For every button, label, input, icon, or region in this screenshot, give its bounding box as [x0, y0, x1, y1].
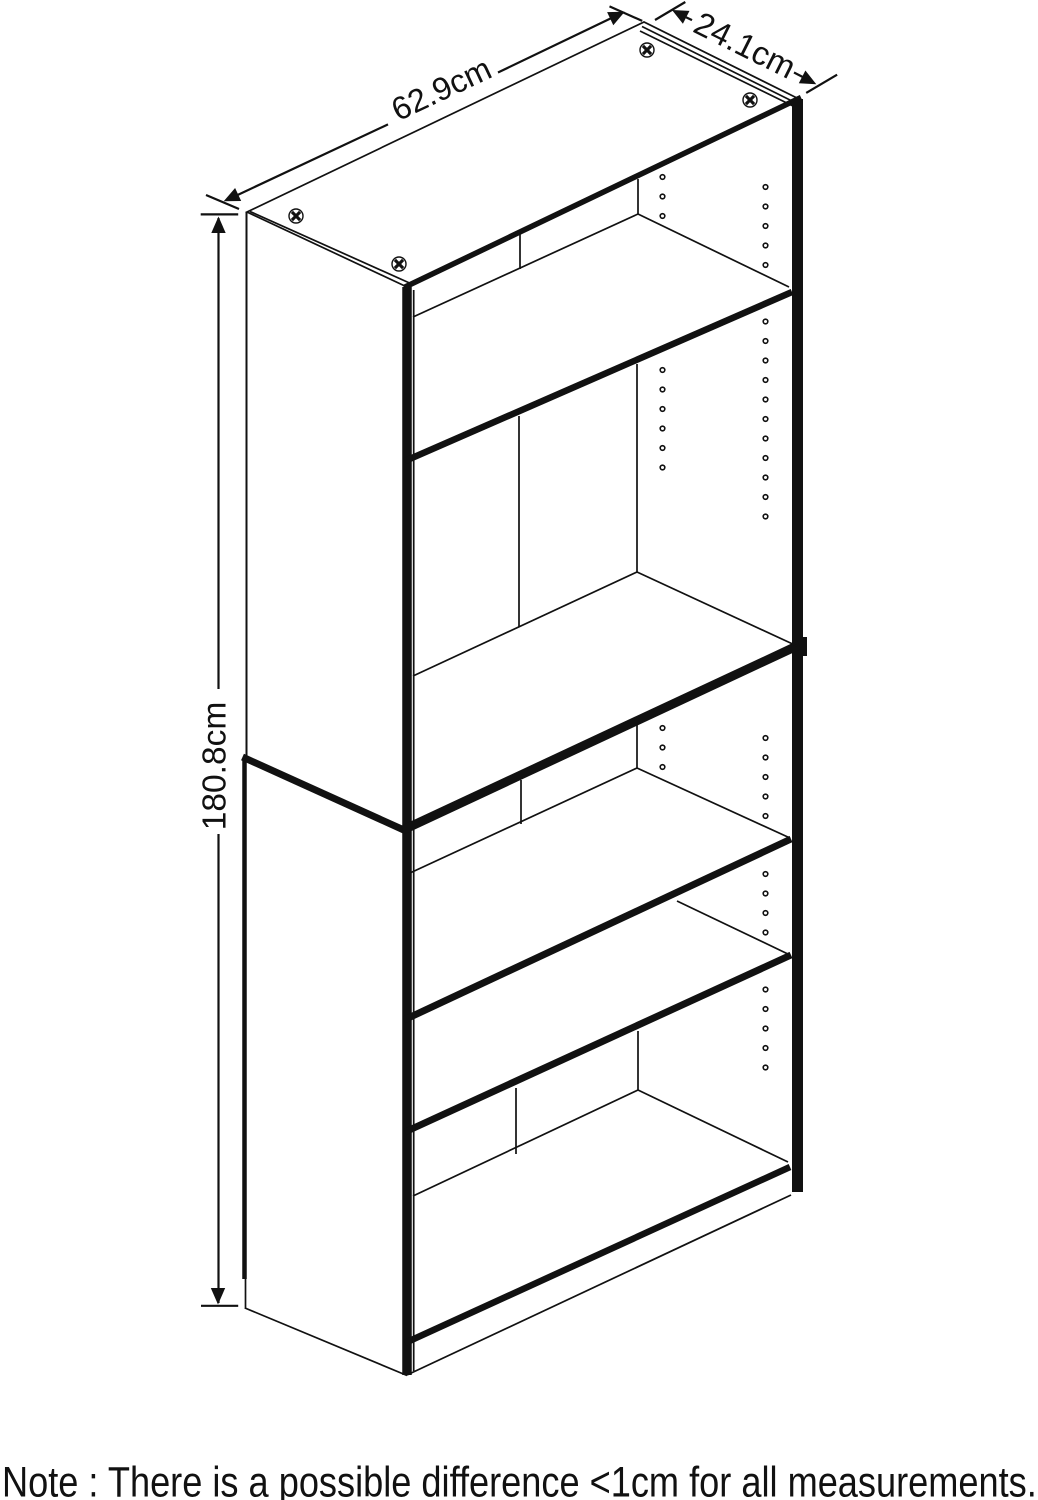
svg-text:24.1cm: 24.1cm: [688, 4, 801, 85]
svg-text:Note : There is a possible dif: Note : There is a possible difference <1…: [2, 1459, 1037, 1500]
svg-text:62.9cm: 62.9cm: [386, 50, 497, 128]
svg-text:180.8cm: 180.8cm: [197, 702, 234, 831]
